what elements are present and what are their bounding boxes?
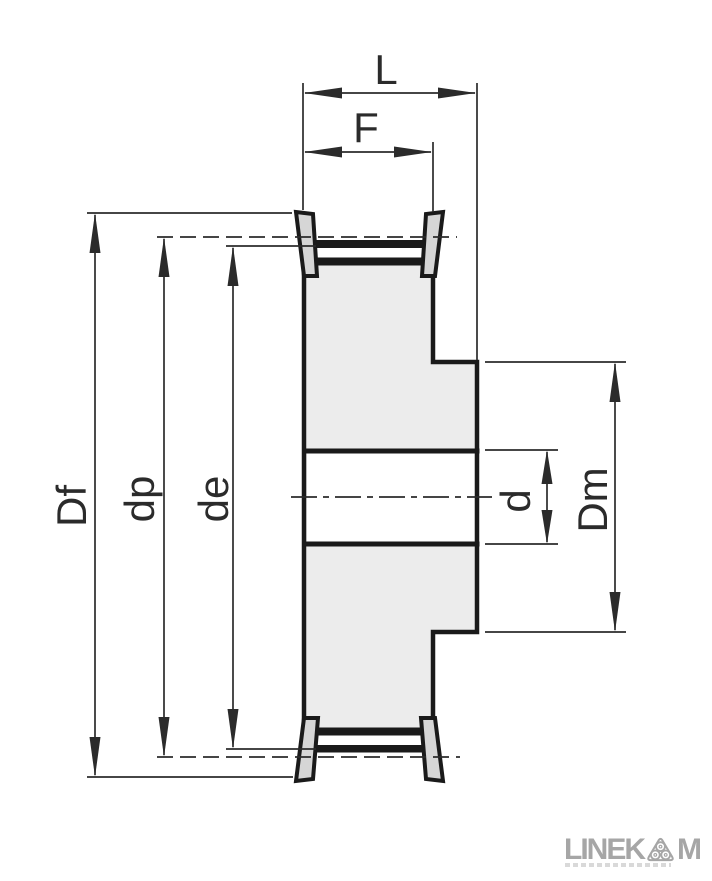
arrow-dp-up: [159, 237, 170, 277]
arrow-dp-down: [159, 717, 170, 757]
arrow-Df-down: [90, 737, 101, 777]
logo-tagline-illegible: [565, 863, 671, 867]
arrow-F-left: [304, 147, 342, 158]
brand-text-right: M: [677, 835, 700, 865]
top-tooth-bar-outer: [315, 240, 424, 248]
arrow-de-down: [228, 709, 239, 749]
brand-logo: LINEK M: [564, 835, 700, 865]
dim-label-d: d: [495, 489, 537, 512]
triple-pulley-o-icon: [647, 837, 674, 863]
flange-top-left: [296, 212, 317, 276]
arrow-Df-up: [90, 213, 101, 253]
technical-drawing-canvas: L F Df dp de d Dm LINEK M: [0, 0, 712, 881]
top-tooth-bar-inner: [315, 258, 424, 266]
dim-label-L: L: [374, 49, 397, 91]
arrow-Dm-up: [610, 362, 621, 402]
arrow-Dm-down: [610, 592, 621, 632]
arrow-d-down: [542, 510, 553, 544]
arrow-d-up: [542, 450, 553, 484]
bottom-tooth-bar-inner: [315, 728, 424, 736]
arrow-L-right: [438, 88, 476, 99]
arrow-de-up: [228, 246, 239, 286]
arrow-L-left: [304, 88, 342, 99]
bottom-tooth-bar-outer: [315, 745, 424, 753]
flange-bottom-right: [421, 718, 443, 781]
flange-top-right: [422, 212, 443, 276]
brand-text-left: LINEK: [564, 835, 644, 865]
dim-label-de: de: [193, 476, 235, 523]
dim-label-dp: dp: [119, 476, 161, 523]
dim-label-F: F: [353, 107, 379, 149]
dim-label-Dm: Dm: [572, 467, 614, 532]
arrow-F-right: [394, 147, 432, 158]
dim-label-Df: Df: [51, 485, 93, 527]
